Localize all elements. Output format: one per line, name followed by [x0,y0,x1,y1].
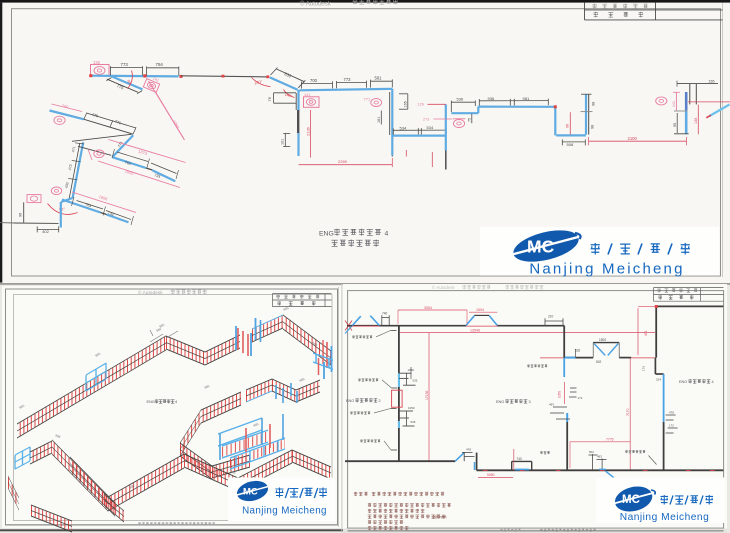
svg-text:2: 2 [379,399,381,403]
svg-text:502: 502 [589,450,594,454]
svg-text:536: 536 [457,97,464,102]
svg-text:ENG: ENG [496,400,504,404]
svg-text:985mm: 985mm [433,515,447,520]
svg-text:773: 773 [121,62,129,67]
svg-text:478: 478 [669,411,674,415]
svg-text:ENG: ENG [147,399,155,404]
svg-text:224: 224 [656,378,661,382]
svg-text:771: 771 [364,97,371,102]
svg-text:1050: 1050 [408,368,415,372]
svg-text:172: 172 [578,396,583,400]
svg-text:534: 534 [427,125,434,130]
svg-text:535: 535 [413,379,418,383]
svg-text:126: 126 [93,60,101,65]
svg-text:7170: 7170 [626,408,630,416]
svg-text:© Autodesk: © Autodesk [300,1,332,8]
svg-text:138: 138 [694,118,698,124]
svg-text:936: 936 [488,96,495,101]
svg-text:141: 141 [672,101,676,107]
svg-text:581: 581 [375,76,383,81]
svg-text:1050: 1050 [558,391,562,398]
svg-text:478: 478 [466,448,471,452]
svg-text:96: 96 [19,213,23,217]
svg-text:98: 98 [591,102,595,106]
svg-text:773: 773 [344,77,352,82]
svg-text:700: 700 [310,78,318,83]
svg-text:3: 3 [529,400,531,404]
svg-text:2269: 2269 [338,159,348,164]
svg-text:161: 161 [377,117,381,123]
svg-text:96: 96 [565,124,569,128]
svg-text:ENG: ENG [346,399,354,403]
svg-text:273: 273 [423,117,429,121]
svg-text:210: 210 [548,314,554,318]
svg-text:535: 535 [411,420,416,424]
svg-text:1500: 1500 [599,338,606,342]
svg-text:95: 95 [673,123,677,127]
svg-text:463: 463 [597,455,602,459]
svg-text:17136: 17136 [425,390,429,400]
svg-text:ENG: ENG [319,230,334,237]
svg-text:3554: 3554 [424,306,432,310]
svg-text:176: 176 [642,366,646,371]
svg-text:172: 172 [669,424,674,428]
svg-text:740: 740 [517,457,523,461]
svg-text:451: 451 [644,330,648,336]
svg-text:Nanjing Meicheng: Nanjing Meicheng [529,261,684,278]
svg-text:1050: 1050 [408,406,415,410]
svg-text:2100: 2100 [628,136,638,141]
svg-text:534: 534 [400,125,407,130]
svg-text:508: 508 [567,142,574,147]
svg-text:502: 502 [596,360,602,364]
svg-text:402: 402 [42,229,49,234]
svg-text:2136: 2136 [305,126,310,136]
svg-text:165: 165 [709,79,715,83]
svg-text:141: 141 [304,93,310,97]
svg-text:76: 76 [267,96,272,101]
svg-text:165: 165 [403,101,407,107]
svg-text:75: 75 [468,118,472,122]
svg-text:981: 981 [523,96,530,101]
svg-text:794: 794 [156,62,164,67]
svg-text:7776: 7776 [606,437,614,441]
svg-text:© Autodesk: © Autodesk [432,285,455,290]
svg-text:Nanjing Meicheng: Nanjing Meicheng [242,506,327,517]
svg-text:98: 98 [590,125,594,129]
svg-text:4: 4 [712,380,714,384]
svg-text:463: 463 [549,403,554,407]
svg-text:5080: 5080 [487,473,495,477]
svg-text:4: 4 [385,230,389,237]
svg-text:129: 129 [418,103,424,107]
svg-text:13546: 13546 [470,328,480,332]
svg-text:Nanjing Meicheng: Nanjing Meicheng [620,512,710,523]
svg-text:ENG: ENG [679,380,687,384]
svg-text:© Autodesk: © Autodesk [138,289,163,296]
svg-text:740: 740 [382,312,388,316]
svg-text:1594: 1594 [476,308,484,312]
svg-text:101: 101 [280,139,284,145]
